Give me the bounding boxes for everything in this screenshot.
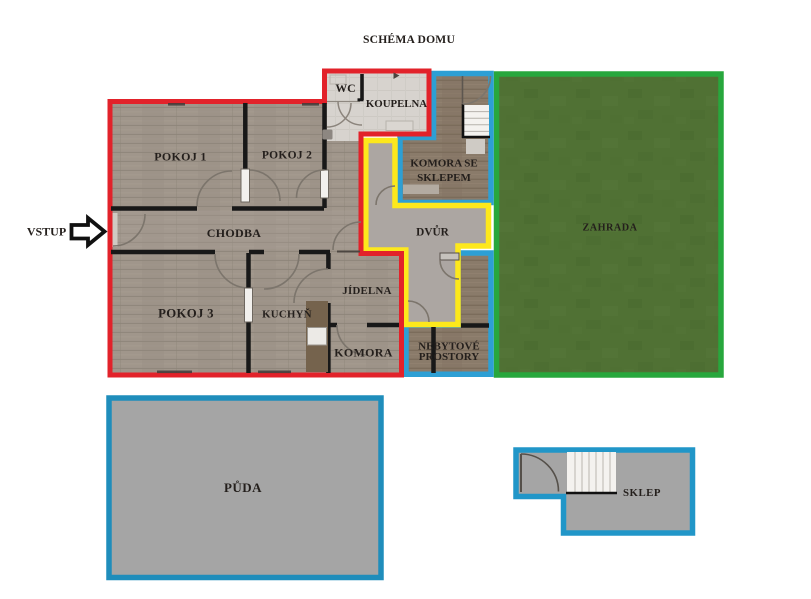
svg-text:PROSTORY: PROSTORY (419, 351, 480, 363)
svg-text:SKLEPEM: SKLEPEM (417, 172, 471, 184)
svg-text:ZAHRADA: ZAHRADA (582, 223, 637, 234)
svg-text:KOMORA SE: KOMORA SE (410, 158, 478, 170)
svg-text:DVŮR: DVŮR (416, 226, 449, 239)
svg-text:POKOJ 3: POKOJ 3 (158, 307, 214, 321)
svg-text:KUCHYŇ: KUCHYŇ (262, 309, 312, 321)
svg-text:KOMORA: KOMORA (334, 346, 392, 360)
svg-text:VSTUP: VSTUP (27, 225, 66, 239)
svg-text:JÍDELNA: JÍDELNA (342, 285, 392, 297)
svg-text:CHODBA: CHODBA (207, 226, 262, 240)
svg-text:POKOJ 2: POKOJ 2 (262, 150, 312, 162)
svg-text:POKOJ 1: POKOJ 1 (154, 150, 206, 164)
svg-text:WC: WC (335, 81, 355, 95)
svg-text:KOUPELNA: KOUPELNA (366, 98, 427, 110)
svg-text:SKLEP: SKLEP (623, 487, 661, 499)
svg-text:PŮDA: PŮDA (224, 480, 262, 495)
svg-text:SCHÉMA DOMU: SCHÉMA DOMU (363, 32, 455, 46)
